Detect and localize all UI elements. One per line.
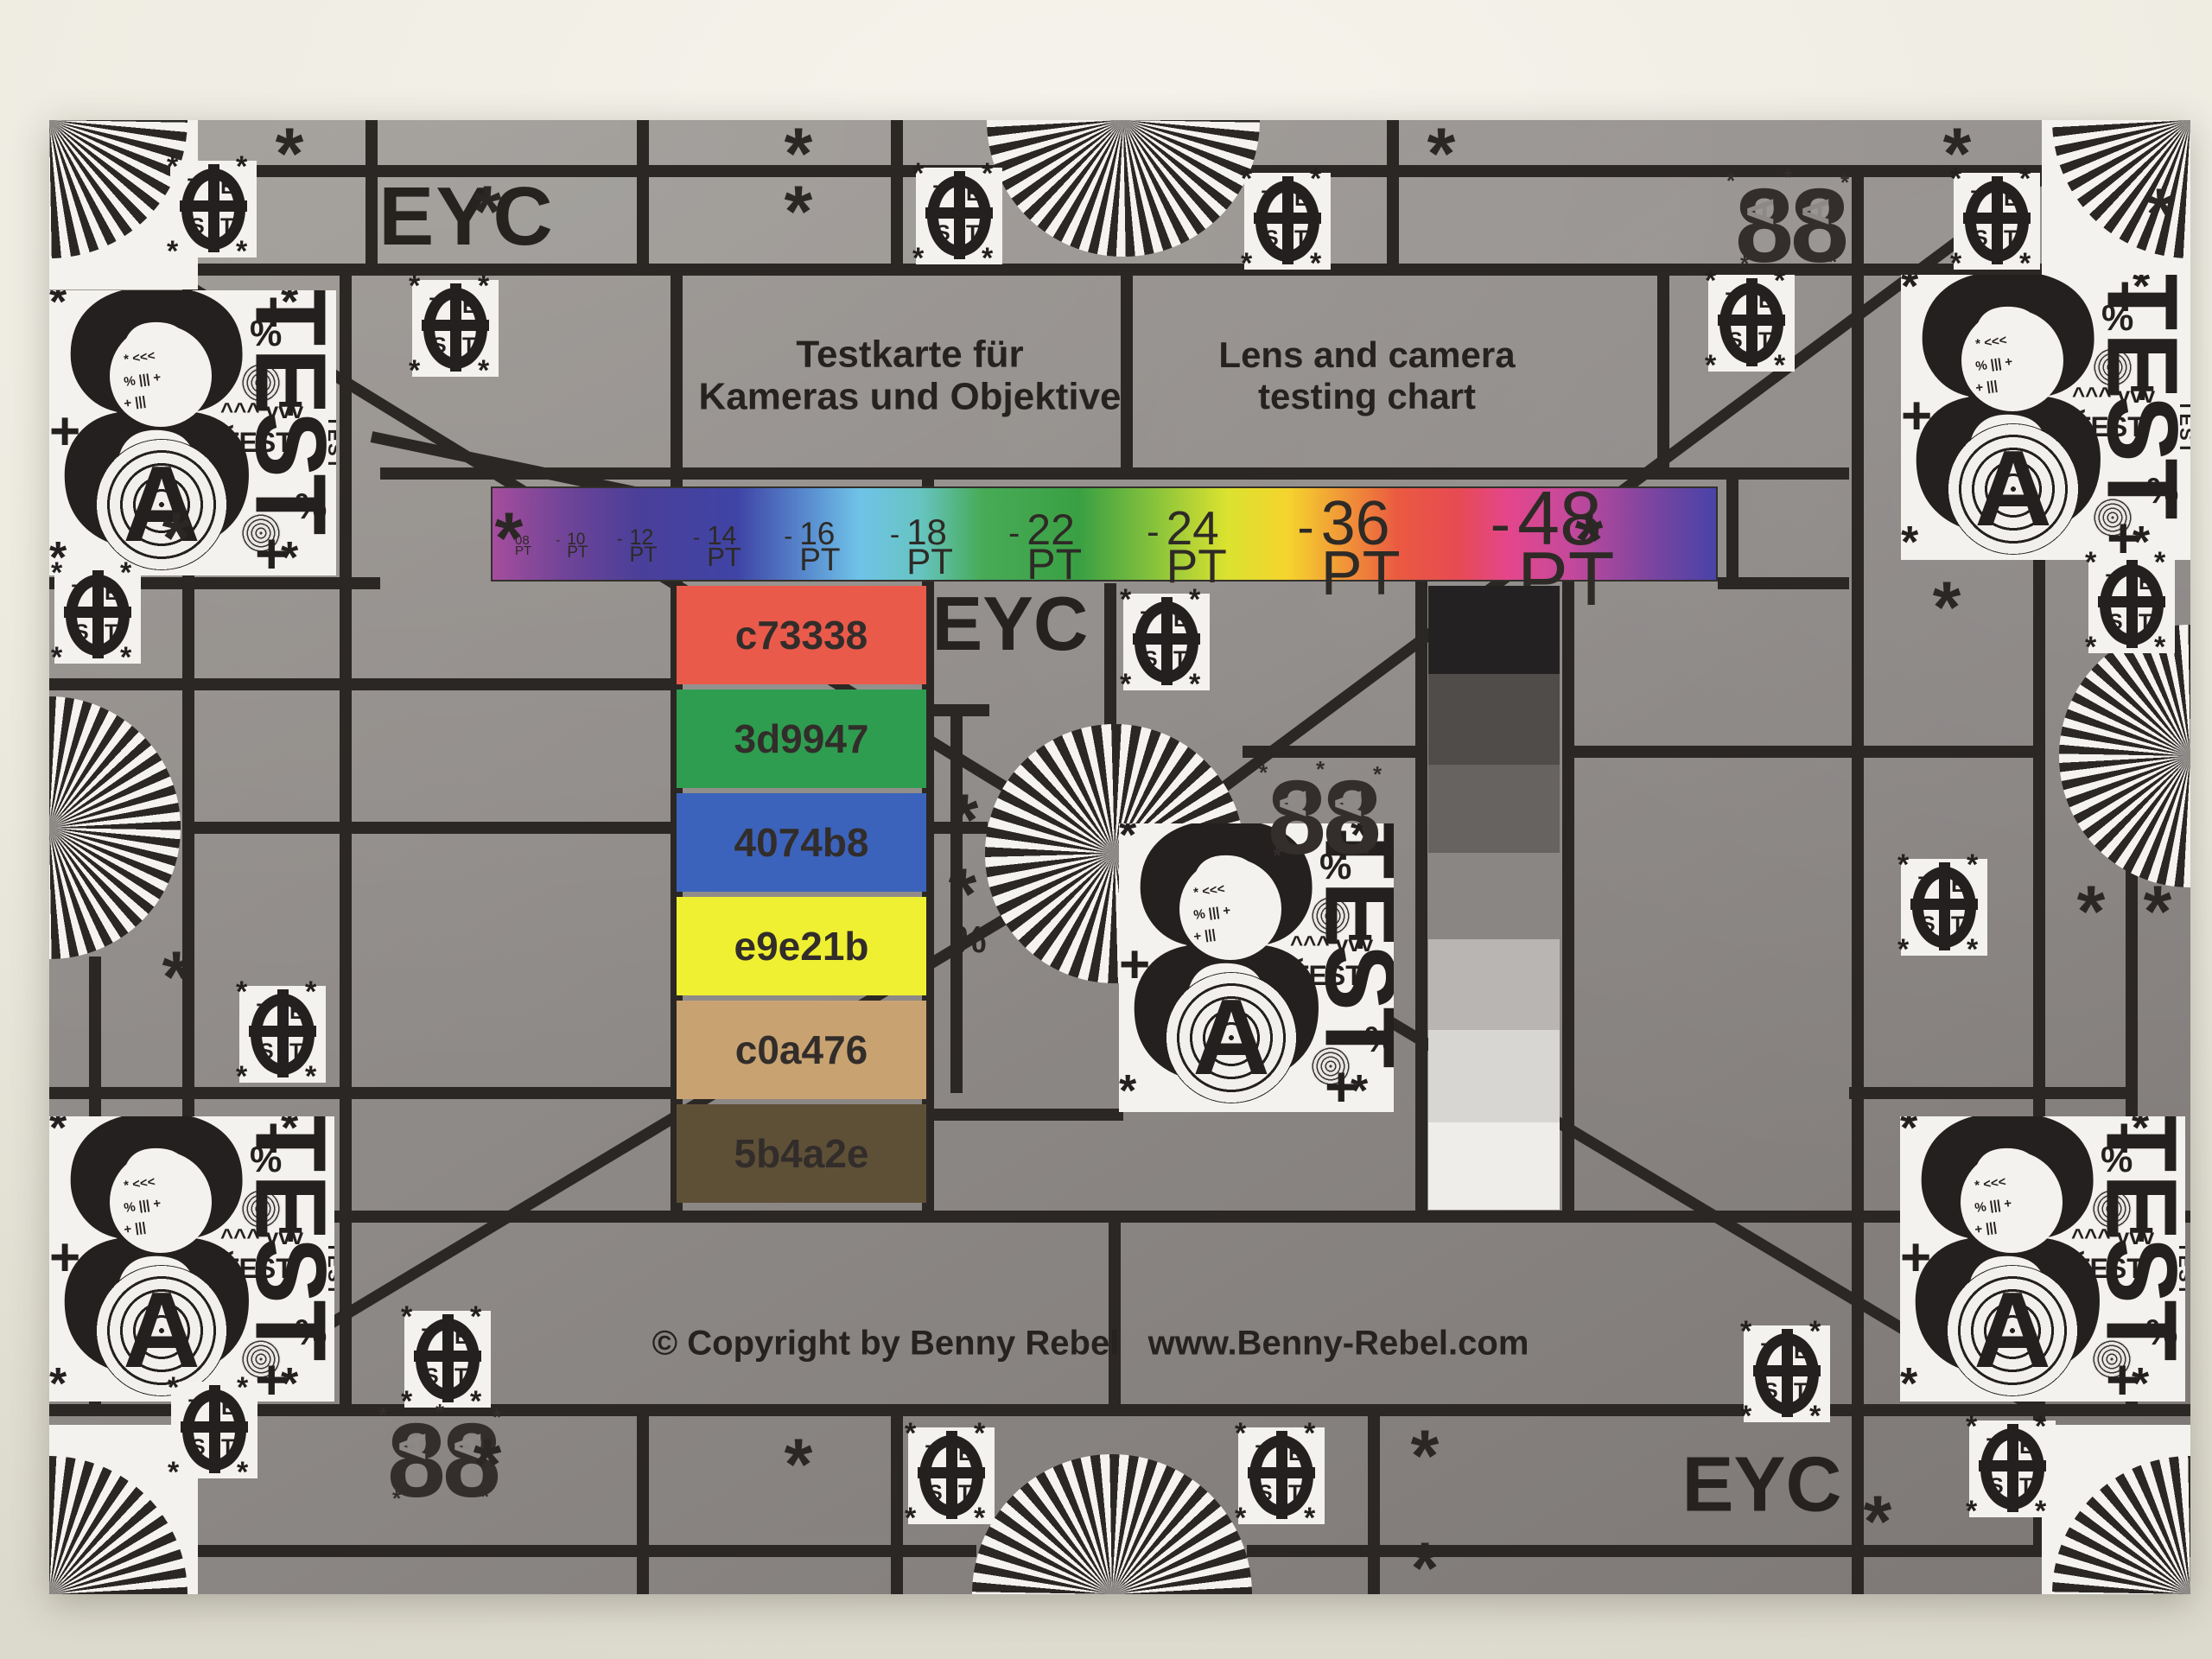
- test-logo-letter: T: [1758, 328, 1771, 353]
- test-logo-letter: E: [1794, 1339, 1808, 1364]
- color-patch: e9e21b: [677, 897, 926, 995]
- test-logo-letter: S: [1921, 912, 1935, 938]
- font-scale-label: 16 PT: [799, 521, 883, 572]
- test-logo-asterisk: *: [236, 1060, 247, 1094]
- test-logo-letter: E: [2004, 187, 2018, 212]
- test-logo-letter: T: [1986, 1434, 1999, 1459]
- color-patch-hex-label: 4074b8: [734, 819, 868, 866]
- test-logo-letter: T: [2019, 1474, 2032, 1499]
- test-logo-letter: T: [2004, 226, 2017, 251]
- asterisk-mark: *: [785, 1423, 813, 1507]
- test-circle-logo: TEST****: [1969, 1421, 2056, 1517]
- asterisk-mark: *: [1864, 1480, 1892, 1564]
- panel-cross-mark: +: [1119, 934, 1150, 995]
- panel-upper-loop-detail: * <<<% ||| ++ |||: [110, 325, 212, 427]
- test-logo-asterisk: *: [1897, 849, 1909, 882]
- asterisk-mark: *: [1943, 120, 1972, 196]
- test-logo-asterisk: *: [1120, 583, 1131, 617]
- test-logo-letter: E: [220, 175, 235, 200]
- test-circle-logo: TEST****: [2088, 556, 2175, 653]
- test-logo-letter: T: [221, 1435, 234, 1460]
- panel-letter-a: A: [1974, 428, 2052, 550]
- panel-lower-loop-rings: A: [1947, 1265, 2078, 1396]
- test-logo-asterisk: *: [2035, 1410, 2046, 1444]
- test-logo-asterisk: *: [1235, 1417, 1246, 1451]
- test-logo-asterisk: *: [236, 150, 247, 184]
- test-logo-letter: T: [1951, 912, 1964, 938]
- grid-line-vertical: [1726, 474, 1738, 583]
- test-logo-asterisk: *: [905, 1417, 916, 1451]
- asterisk-mark: *: [2144, 870, 2172, 954]
- grid-line-vertical: [1368, 1410, 1380, 1594]
- test-logo-letter: S: [191, 1435, 206, 1460]
- panel-test-word-small-vertical: TEST: [2175, 400, 2190, 455]
- siemens-star-fan: [49, 696, 181, 959]
- test-circle-logo: TEST****: [908, 1427, 995, 1524]
- test-logo-letter: S: [1989, 1474, 2004, 1499]
- eight-a-glyph-a: A: [1739, 198, 1783, 226]
- test-logo-asterisk: *: [912, 242, 924, 276]
- font-scale-separator: -: [617, 532, 623, 546]
- test-logo-letter: S: [1258, 1481, 1273, 1506]
- font-scale-separator: -: [1008, 519, 1020, 547]
- font-scale-label: 12 PT: [630, 529, 686, 563]
- test-logo-asterisk: *: [1740, 1400, 1751, 1433]
- test-logo-asterisk: *: [478, 354, 489, 388]
- test-logo-asterisk: *: [305, 976, 316, 1009]
- asterisk-mark: *: [2077, 870, 2106, 954]
- font-scale-label: 36 PT: [1321, 499, 1484, 599]
- test-logo-asterisk: *: [1310, 247, 1321, 281]
- test-logo-letter: S: [424, 1364, 439, 1389]
- panel-asterisk-mark: *: [1119, 1065, 1136, 1112]
- panel-upper-loop-detail: * <<<% ||| ++ |||: [1961, 1151, 2063, 1253]
- asterisk-mark: *: [162, 936, 191, 1020]
- test-logo-cross-horizontal: [1979, 1460, 2046, 1471]
- font-scale-separator: -: [1491, 499, 1510, 548]
- test-logo-asterisk: *: [982, 157, 993, 191]
- test-logo-asterisk: *: [2085, 546, 2096, 580]
- test-logo-asterisk: *: [51, 641, 62, 675]
- test-logo-letter: T: [966, 221, 979, 246]
- siemens-star-fan: [972, 1454, 1252, 1594]
- test-logo-asterisk: *: [168, 1371, 179, 1405]
- test-logo-letter: S: [1143, 647, 1158, 672]
- color-patch: 3d9947: [677, 690, 926, 788]
- asterisk-mark: *: [785, 170, 813, 254]
- eight-a-glyph-a: A: [1795, 198, 1838, 226]
- test-logo-asterisk: *: [1120, 668, 1131, 702]
- test-logo-asterisk: *: [1966, 1495, 1977, 1529]
- panel-lower-loop-rings: A: [1166, 972, 1297, 1103]
- eight-a-glyph-a: A: [1272, 790, 1315, 817]
- asterisk-mark: *: [1427, 120, 1456, 196]
- grid-line-horizontal: [1849, 1087, 2132, 1099]
- test-logo-letter: S: [1764, 1379, 1778, 1404]
- test-logo-asterisk: *: [478, 270, 489, 303]
- test-circle-logo: TEST****: [1244, 173, 1331, 270]
- panel-asterisk-mark: *: [281, 1116, 298, 1154]
- test-logo-letter: T: [188, 1395, 201, 1421]
- panel-cross-mark: +: [1901, 385, 1932, 447]
- test-logo-asterisk: *: [2035, 1495, 2046, 1529]
- test-logo-letter: T: [257, 1000, 270, 1025]
- font-size-rainbow-bar: 08 PT-10 PT-12 PT-14 PT-16 PT-18 PT-22 P…: [491, 486, 1718, 582]
- test-logo-letter: T: [1288, 1481, 1301, 1506]
- test-circle-logo: TEST****: [916, 168, 1002, 264]
- panel-asterisk-mark: *: [2133, 517, 2150, 560]
- test-logo-cross-horizontal: [1963, 213, 2031, 224]
- test-logo-letter: E: [289, 1000, 304, 1025]
- color-patch: 5b4a2e: [677, 1104, 926, 1203]
- color-patch: 4074b8: [677, 793, 926, 892]
- title-german-line1: Testkarte für: [698, 334, 1121, 376]
- test-logo-cross-horizontal: [64, 607, 131, 618]
- color-patch-hex-label: c0a476: [735, 1027, 868, 1073]
- test-logo-letter: T: [1918, 873, 1931, 898]
- font-scale-label: 10 PT: [567, 533, 610, 559]
- test-logo-letter: S: [936, 221, 950, 246]
- test-logo-letter: T: [1294, 226, 1307, 251]
- test-logo-letter: T: [1255, 1441, 1268, 1466]
- eight-a-asterisk: *: [1316, 756, 1325, 783]
- font-scale-label: 24 PT: [1166, 509, 1291, 585]
- test-logo-letter: S: [1264, 226, 1279, 251]
- test-logo-asterisk: *: [1809, 1400, 1821, 1433]
- panel-letter-a: A: [1974, 1269, 2051, 1392]
- test-logo-letter: E: [105, 581, 119, 606]
- title-english-line2: testing chart: [1218, 376, 1515, 417]
- test-logo-asterisk: *: [1304, 1502, 1315, 1535]
- panel-asterisk-mark: *: [49, 1116, 67, 1154]
- panel-asterisk-mark: *: [2133, 275, 2150, 313]
- panel-asterisk-mark: *: [2132, 1116, 2149, 1154]
- panel-asterisk-mark: *: [1900, 1116, 1917, 1154]
- panel-letter-a: A: [1192, 976, 1270, 1099]
- panel-lower-loop-rings: A: [96, 1265, 227, 1396]
- test-logo-letter: T: [429, 294, 442, 319]
- font-scale-separator: -: [1297, 508, 1313, 548]
- eyc-mark-top-left: EYC: [378, 169, 554, 264]
- website-text: www.Benny-Rebel.com: [1148, 1325, 1529, 1363]
- test-logo-asterisk: *: [2154, 546, 2165, 580]
- panel-asterisk-mark: *: [281, 532, 298, 575]
- asterisk-mark: *: [474, 170, 502, 254]
- test-circle-logo: TEST****: [54, 567, 141, 664]
- test-circle-logo: TEST****: [239, 986, 326, 1083]
- asterisk-mark: *: [1575, 499, 1604, 582]
- eight-a-asterisk: *: [1361, 841, 1370, 868]
- panel-asterisk-mark: *: [1900, 1358, 1917, 1402]
- color-patch-hex-label: 3d9947: [734, 715, 868, 762]
- test-logo-asterisk: *: [237, 1371, 248, 1405]
- grid-line-vertical: [1104, 583, 1116, 739]
- eight-test-panel: 8* <<<% ||| ++ |||A%%++++<<<^^^ vvvTESTT…: [1900, 1116, 2185, 1402]
- eyc-mark-center: EYC: [932, 580, 1089, 668]
- panel-asterisk-mark: *: [1901, 275, 1918, 313]
- panel-lower-loop-rings: A: [1948, 423, 2079, 555]
- test-logo-asterisk: *: [1705, 264, 1716, 298]
- eight-a-pair: 8A8A*****: [1735, 185, 1849, 268]
- asterisk-mark: *: [1411, 1414, 1440, 1498]
- test-logo-asterisk: *: [470, 1300, 481, 1334]
- font-scale-label: 14 PT: [707, 525, 777, 569]
- test-logo-asterisk: *: [974, 1502, 985, 1535]
- eight-a-pair: 8A8A*****: [1268, 777, 1382, 860]
- test-logo-letter: T: [289, 1039, 302, 1065]
- test-logo-letter: S: [432, 334, 447, 359]
- test-logo-asterisk: *: [905, 1502, 916, 1535]
- eight-a-asterisk: *: [1373, 761, 1382, 788]
- test-logo-letter: T: [1761, 1339, 1774, 1364]
- asterisk-mark: *: [162, 497, 191, 581]
- test-logo-cross-horizontal: [1133, 633, 1200, 645]
- grid-line-vertical: [891, 120, 903, 270]
- test-logo-asterisk: *: [2019, 162, 2031, 196]
- test-logo-asterisk: *: [1740, 1315, 1751, 1349]
- grid-line-vertical: [365, 120, 378, 270]
- grid-line-vertical: [1109, 1217, 1121, 1410]
- eight-test-panel: 8* <<<% ||| ++ |||A%%++++<<<^^^ vvvTESTT…: [49, 290, 336, 575]
- test-circle-logo: TEST****: [171, 1382, 257, 1478]
- test-logo-asterisk: *: [409, 270, 420, 303]
- title-german: Testkarte für Kameras und Objektive: [698, 334, 1121, 419]
- test-logo-asterisk: *: [1897, 933, 1909, 967]
- panel-asterisk-mark: *: [1351, 1065, 1368, 1112]
- grayscale-step: [1428, 853, 1560, 939]
- panel-test-word-small-vertical: TEST: [323, 1242, 334, 1297]
- test-logo-letter: T: [1141, 607, 1154, 632]
- test-logo-asterisk: *: [1967, 849, 1978, 882]
- test-logo-letter: T: [1173, 647, 1186, 672]
- test-logo-cross-horizontal: [1254, 213, 1321, 224]
- grid-line-horizontal: [926, 1109, 1123, 1121]
- test-logo-cross-horizontal: [180, 200, 247, 212]
- color-patch-hex-label: 5b4a2e: [734, 1130, 868, 1177]
- copyright-text: © Copyright by Benny Rebel: [652, 1325, 1120, 1363]
- test-logo-letter: T: [1726, 289, 1738, 314]
- test-logo-cross-horizontal: [414, 1351, 481, 1362]
- grid-line-horizontal: [49, 1087, 677, 1099]
- test-logo-cross-horizontal: [2098, 596, 2165, 607]
- eyc-mark-bottom-right: EYC: [1681, 1441, 1841, 1530]
- eight-a-asterisk: *: [1273, 842, 1281, 869]
- test-logo-letter: E: [1758, 289, 1773, 314]
- test-logo-asterisk: *: [401, 1300, 412, 1334]
- test-logo-letter: E: [1294, 187, 1309, 212]
- font-scale-separator: -: [784, 526, 792, 547]
- font-scale-separator: -: [556, 536, 560, 546]
- test-logo-asterisk: *: [409, 354, 420, 388]
- grid-line-horizontal: [188, 822, 677, 834]
- test-logo-letter: T: [105, 620, 118, 645]
- test-logo-letter: T: [220, 214, 233, 239]
- font-scale-label: 18 PT: [906, 518, 1001, 575]
- eight-a-asterisk: *: [1828, 249, 1837, 276]
- title-german-line2: Kameras und Objektive: [698, 376, 1121, 418]
- test-circle-logo: TEST****: [412, 280, 499, 377]
- grid-line-vertical: [1852, 171, 1864, 1594]
- test-logo-asterisk: *: [2019, 247, 2031, 281]
- test-logo-asterisk: *: [1310, 162, 1321, 196]
- asterisk-mark: *: [495, 497, 524, 581]
- test-logo-asterisk: *: [236, 976, 247, 1009]
- panel-asterisk-mark: *: [49, 290, 67, 328]
- title-english: Lens and camera testing chart: [1218, 334, 1515, 417]
- panel-test-word-small-vertical: TEST: [323, 416, 336, 471]
- test-logo-letter: E: [966, 181, 981, 207]
- test-logo-asterisk: *: [1966, 1410, 1977, 1444]
- test-logo-asterisk: *: [1189, 583, 1200, 617]
- grid-line-horizontal: [188, 1545, 976, 1557]
- panel-upper-loop-detail: * <<<% ||| ++ |||: [110, 1151, 212, 1253]
- test-circle-logo: TEST****: [1744, 1325, 1830, 1422]
- test-logo-letter: E: [221, 1395, 236, 1421]
- test-logo-letter: T: [925, 1441, 938, 1466]
- eight-a-asterisk: *: [1840, 169, 1849, 196]
- test-logo-asterisk: *: [120, 556, 131, 590]
- eight-a-glyph-a: A: [391, 1433, 435, 1460]
- test-logo-asterisk: *: [1705, 349, 1716, 383]
- eight-a-asterisk: *: [392, 1485, 401, 1512]
- test-logo-letter: T: [462, 334, 475, 359]
- panel-asterisk-mark: *: [1901, 517, 1918, 560]
- test-logo-asterisk: *: [1967, 933, 1978, 967]
- font-scale-separator: -: [890, 524, 899, 547]
- test-logo-asterisk: *: [974, 1417, 985, 1451]
- grid-line-vertical: [1415, 582, 1427, 1217]
- test-logo-asterisk: *: [237, 1456, 248, 1490]
- test-logo-cross-horizontal: [181, 1421, 248, 1433]
- eight-a-asterisk: *: [435, 1399, 444, 1426]
- photo-of-test-chart: 08 PT-10 PT-12 PT-14 PT-16 PT-18 PT-22 P…: [0, 0, 2212, 1659]
- test-logo-letter: T: [958, 1481, 971, 1506]
- test-logo-letter: T: [454, 1364, 467, 1389]
- grid-line-vertical: [340, 270, 352, 1410]
- eight-a-asterisk: *: [378, 1402, 387, 1429]
- color-patch: c73338: [677, 586, 926, 684]
- test-logo-cross-horizontal: [1718, 315, 1785, 326]
- test-logo-asterisk: *: [912, 157, 924, 191]
- test-logo-letter: T: [72, 581, 85, 606]
- test-logo-letter: E: [462, 294, 477, 319]
- test-logo-letter: T: [2139, 610, 2152, 635]
- panel-asterisk-mark: *: [281, 1358, 298, 1402]
- test-logo-letter: S: [190, 214, 205, 239]
- test-circle-logo: TEST****: [170, 161, 257, 257]
- eight-a-asterisk: *: [1783, 164, 1792, 191]
- test-logo-letter: E: [1288, 1441, 1303, 1466]
- grayscale-step: [1428, 1030, 1560, 1122]
- test-logo-asterisk: *: [982, 242, 993, 276]
- test-logo-asterisk: *: [167, 235, 178, 269]
- grayscale-step: [1428, 765, 1560, 853]
- test-logo-letter: T: [188, 175, 200, 200]
- grid-line-horizontal: [1568, 746, 2045, 758]
- test-circle-logo: TEST****: [1708, 275, 1795, 372]
- percent-mark: %: [952, 918, 986, 962]
- color-patch-hex-label: e9e21b: [734, 923, 868, 969]
- asterisk-mark: *: [1411, 1527, 1440, 1594]
- panel-upper-loop-detail: * <<<% ||| ++ |||: [1179, 858, 1281, 960]
- test-circle-logo: TEST****: [1123, 594, 1210, 690]
- test-logo-asterisk: *: [120, 641, 131, 675]
- test-logo-letter: E: [2019, 1434, 2034, 1459]
- grayscale-step: [1428, 939, 1560, 1030]
- test-logo-letter: S: [1728, 328, 1743, 353]
- grid-line-vertical: [1387, 120, 1399, 270]
- test-logo-asterisk: *: [1809, 1315, 1821, 1349]
- test-logo-cross-horizontal: [249, 1026, 316, 1037]
- grid-line-vertical: [637, 1410, 649, 1594]
- test-logo-letter: E: [454, 1325, 469, 1350]
- panel-cross-mark: +: [1900, 1227, 1931, 1288]
- test-logo-letter: E: [1951, 873, 1966, 898]
- test-logo-letter: E: [958, 1441, 973, 1466]
- grid-line-vertical: [891, 1410, 903, 1594]
- font-scale-separator: -: [1147, 517, 1160, 547]
- panel-asterisk-mark: *: [2132, 1358, 2149, 1402]
- test-logo-letter: E: [2139, 570, 2153, 595]
- siemens-star-fan: [2059, 625, 2190, 887]
- panel-asterisk-mark: *: [49, 1358, 67, 1402]
- eight-a-asterisk: *: [1740, 251, 1749, 277]
- test-chart-card: 08 PT-10 PT-12 PT-14 PT-16 PT-18 PT-22 P…: [49, 120, 2190, 1594]
- eight-a-asterisk: *: [1259, 760, 1268, 786]
- test-logo-letter: S: [928, 1481, 943, 1506]
- test-logo-asterisk: *: [1189, 668, 1200, 702]
- test-logo-letter: S: [259, 1039, 274, 1065]
- test-logo-letter: S: [1974, 226, 1988, 251]
- test-logo-letter: T: [1971, 187, 1984, 212]
- color-patch-hex-label: c73338: [735, 612, 868, 658]
- test-logo-letter: E: [1173, 607, 1188, 632]
- grayscale-step: [1428, 1122, 1560, 1210]
- panel-upper-loop-detail: * <<<% ||| ++ |||: [1961, 309, 2063, 411]
- test-logo-asterisk: *: [51, 556, 62, 590]
- test-logo-letter: T: [933, 181, 946, 207]
- grid-line-horizontal: [49, 678, 677, 690]
- eight-test-panel: 8* <<<% ||| ++ |||A%%++++<<<^^^ vvvTESTT…: [1901, 275, 2190, 560]
- test-circle-logo: TEST****: [1901, 859, 1987, 956]
- test-logo-asterisk: *: [2085, 631, 2096, 664]
- test-logo-asterisk: *: [1241, 162, 1252, 196]
- panel-asterisk-mark: *: [1119, 823, 1136, 861]
- panel-cross-mark: +: [49, 1227, 80, 1288]
- test-logo-letter: T: [1262, 187, 1274, 212]
- title-english-line1: Lens and camera: [1218, 334, 1515, 376]
- test-logo-asterisk: *: [2154, 631, 2165, 664]
- panel-asterisk-mark: *: [281, 290, 298, 328]
- color-patch: c0a476: [677, 1001, 926, 1099]
- test-logo-letter: T: [1794, 1379, 1807, 1404]
- test-logo-letter: S: [74, 620, 89, 645]
- test-logo-letter: S: [2108, 610, 2123, 635]
- panel-cross-mark: +: [49, 401, 80, 462]
- grayscale-step: [1428, 674, 1560, 765]
- test-logo-asterisk: *: [168, 1456, 179, 1490]
- font-scale-separator: -: [693, 529, 700, 546]
- test-logo-asterisk: *: [1950, 247, 1961, 281]
- test-logo-letter: T: [422, 1325, 435, 1350]
- eight-a-glyph-a: A: [1327, 790, 1370, 817]
- test-logo-asterisk: *: [167, 150, 178, 184]
- test-logo-asterisk: *: [1241, 247, 1252, 281]
- test-logo-cross-horizontal: [422, 320, 489, 331]
- asterisk-mark: *: [950, 779, 979, 862]
- asterisk-mark: *: [2146, 173, 2175, 257]
- asterisk-mark: *: [1933, 566, 1961, 650]
